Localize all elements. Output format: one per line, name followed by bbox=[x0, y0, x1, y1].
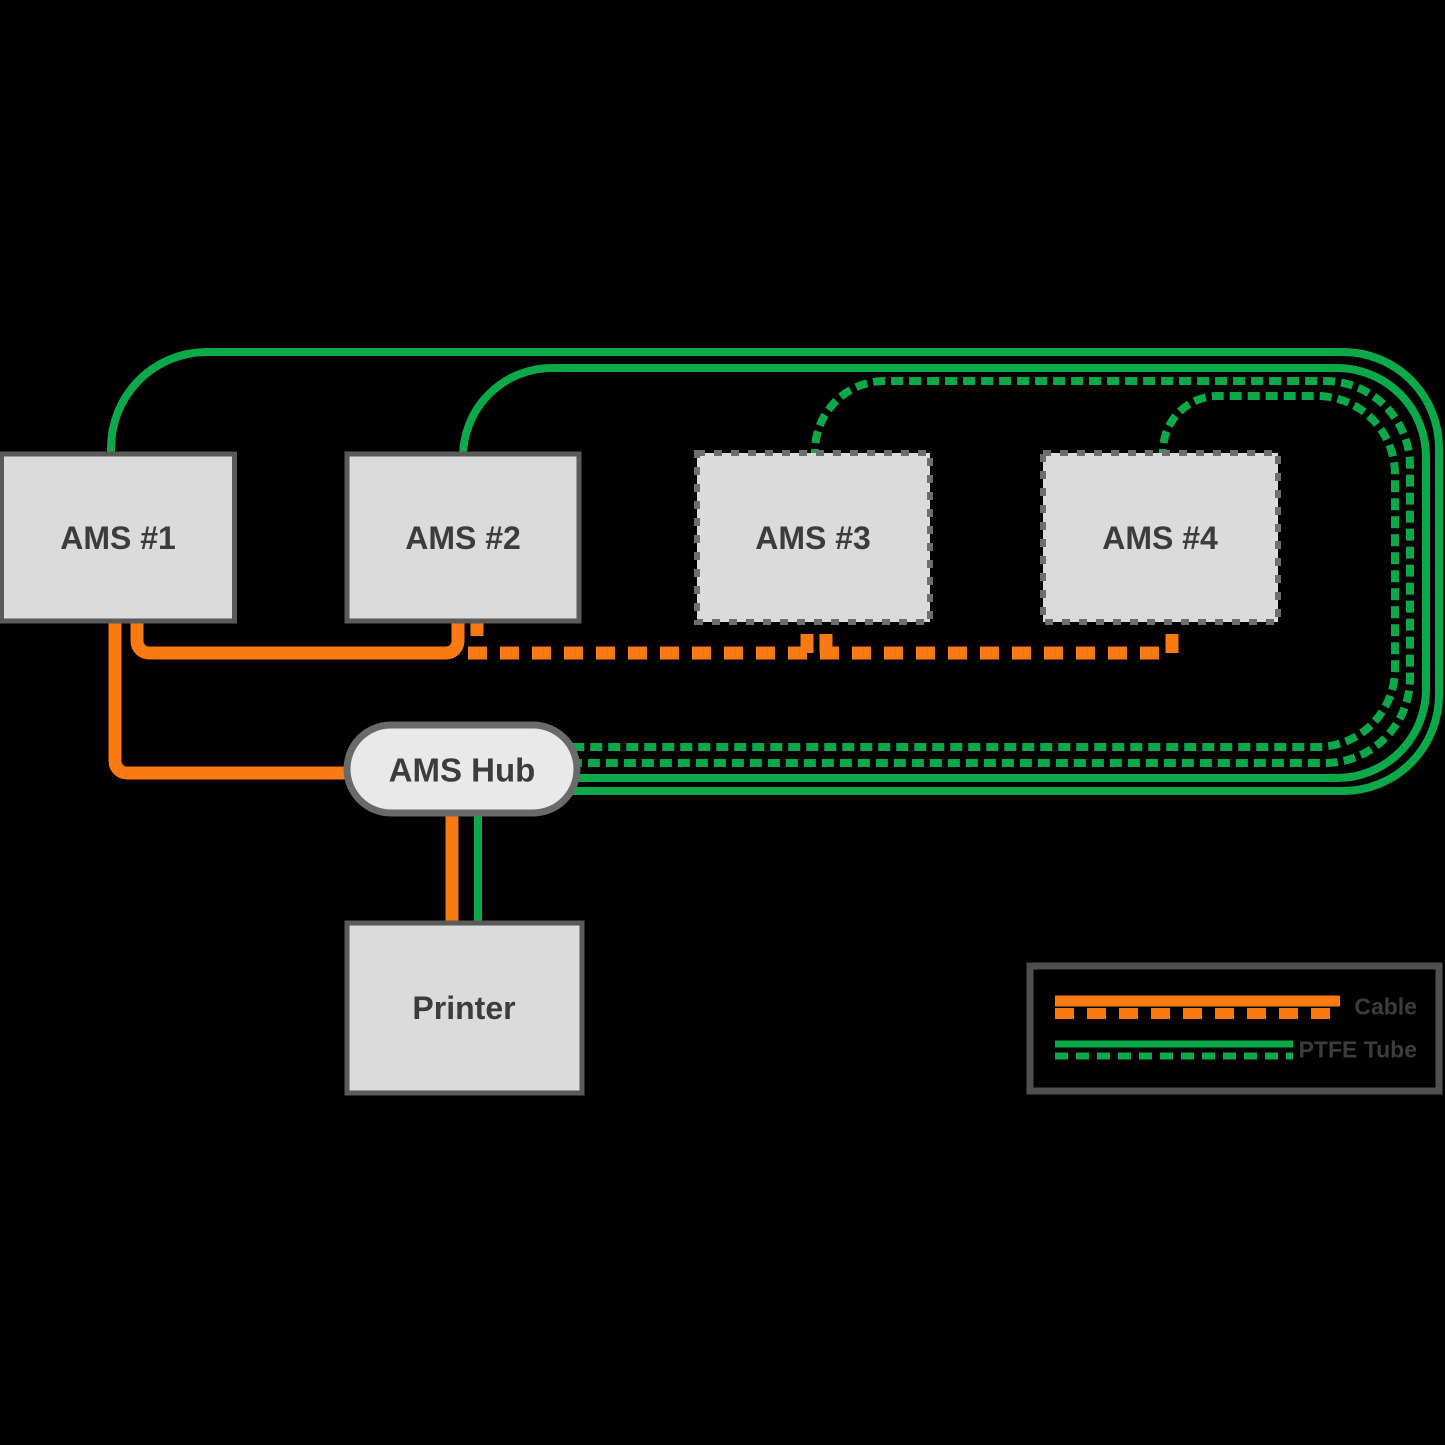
cable-ams1-ams2-path bbox=[137, 619, 458, 653]
ams3-label: AMS #3 bbox=[755, 522, 871, 554]
ams-wiring-diagram: AMS #1 AMS #2 AMS #3 AMS #4 AMS Hub Prin… bbox=[0, 0, 1445, 1445]
ams2-label: AMS #2 bbox=[405, 522, 521, 554]
cable-ams1-hub-path bbox=[115, 619, 352, 773]
ams1-label: AMS #1 bbox=[60, 522, 176, 554]
printer-label: Printer bbox=[412, 992, 515, 1024]
diagram-canvas bbox=[0, 0, 1445, 1445]
ams4-label: AMS #4 bbox=[1102, 522, 1218, 554]
legend-ptfe-label: PTFE Tube bbox=[1299, 1039, 1417, 1062]
legend-cable-label: Cable bbox=[1354, 996, 1417, 1019]
ams-hub-label: AMS Hub bbox=[389, 754, 536, 787]
tube-ams2-path bbox=[463, 368, 1426, 778]
legend-box bbox=[1030, 966, 1439, 1091]
